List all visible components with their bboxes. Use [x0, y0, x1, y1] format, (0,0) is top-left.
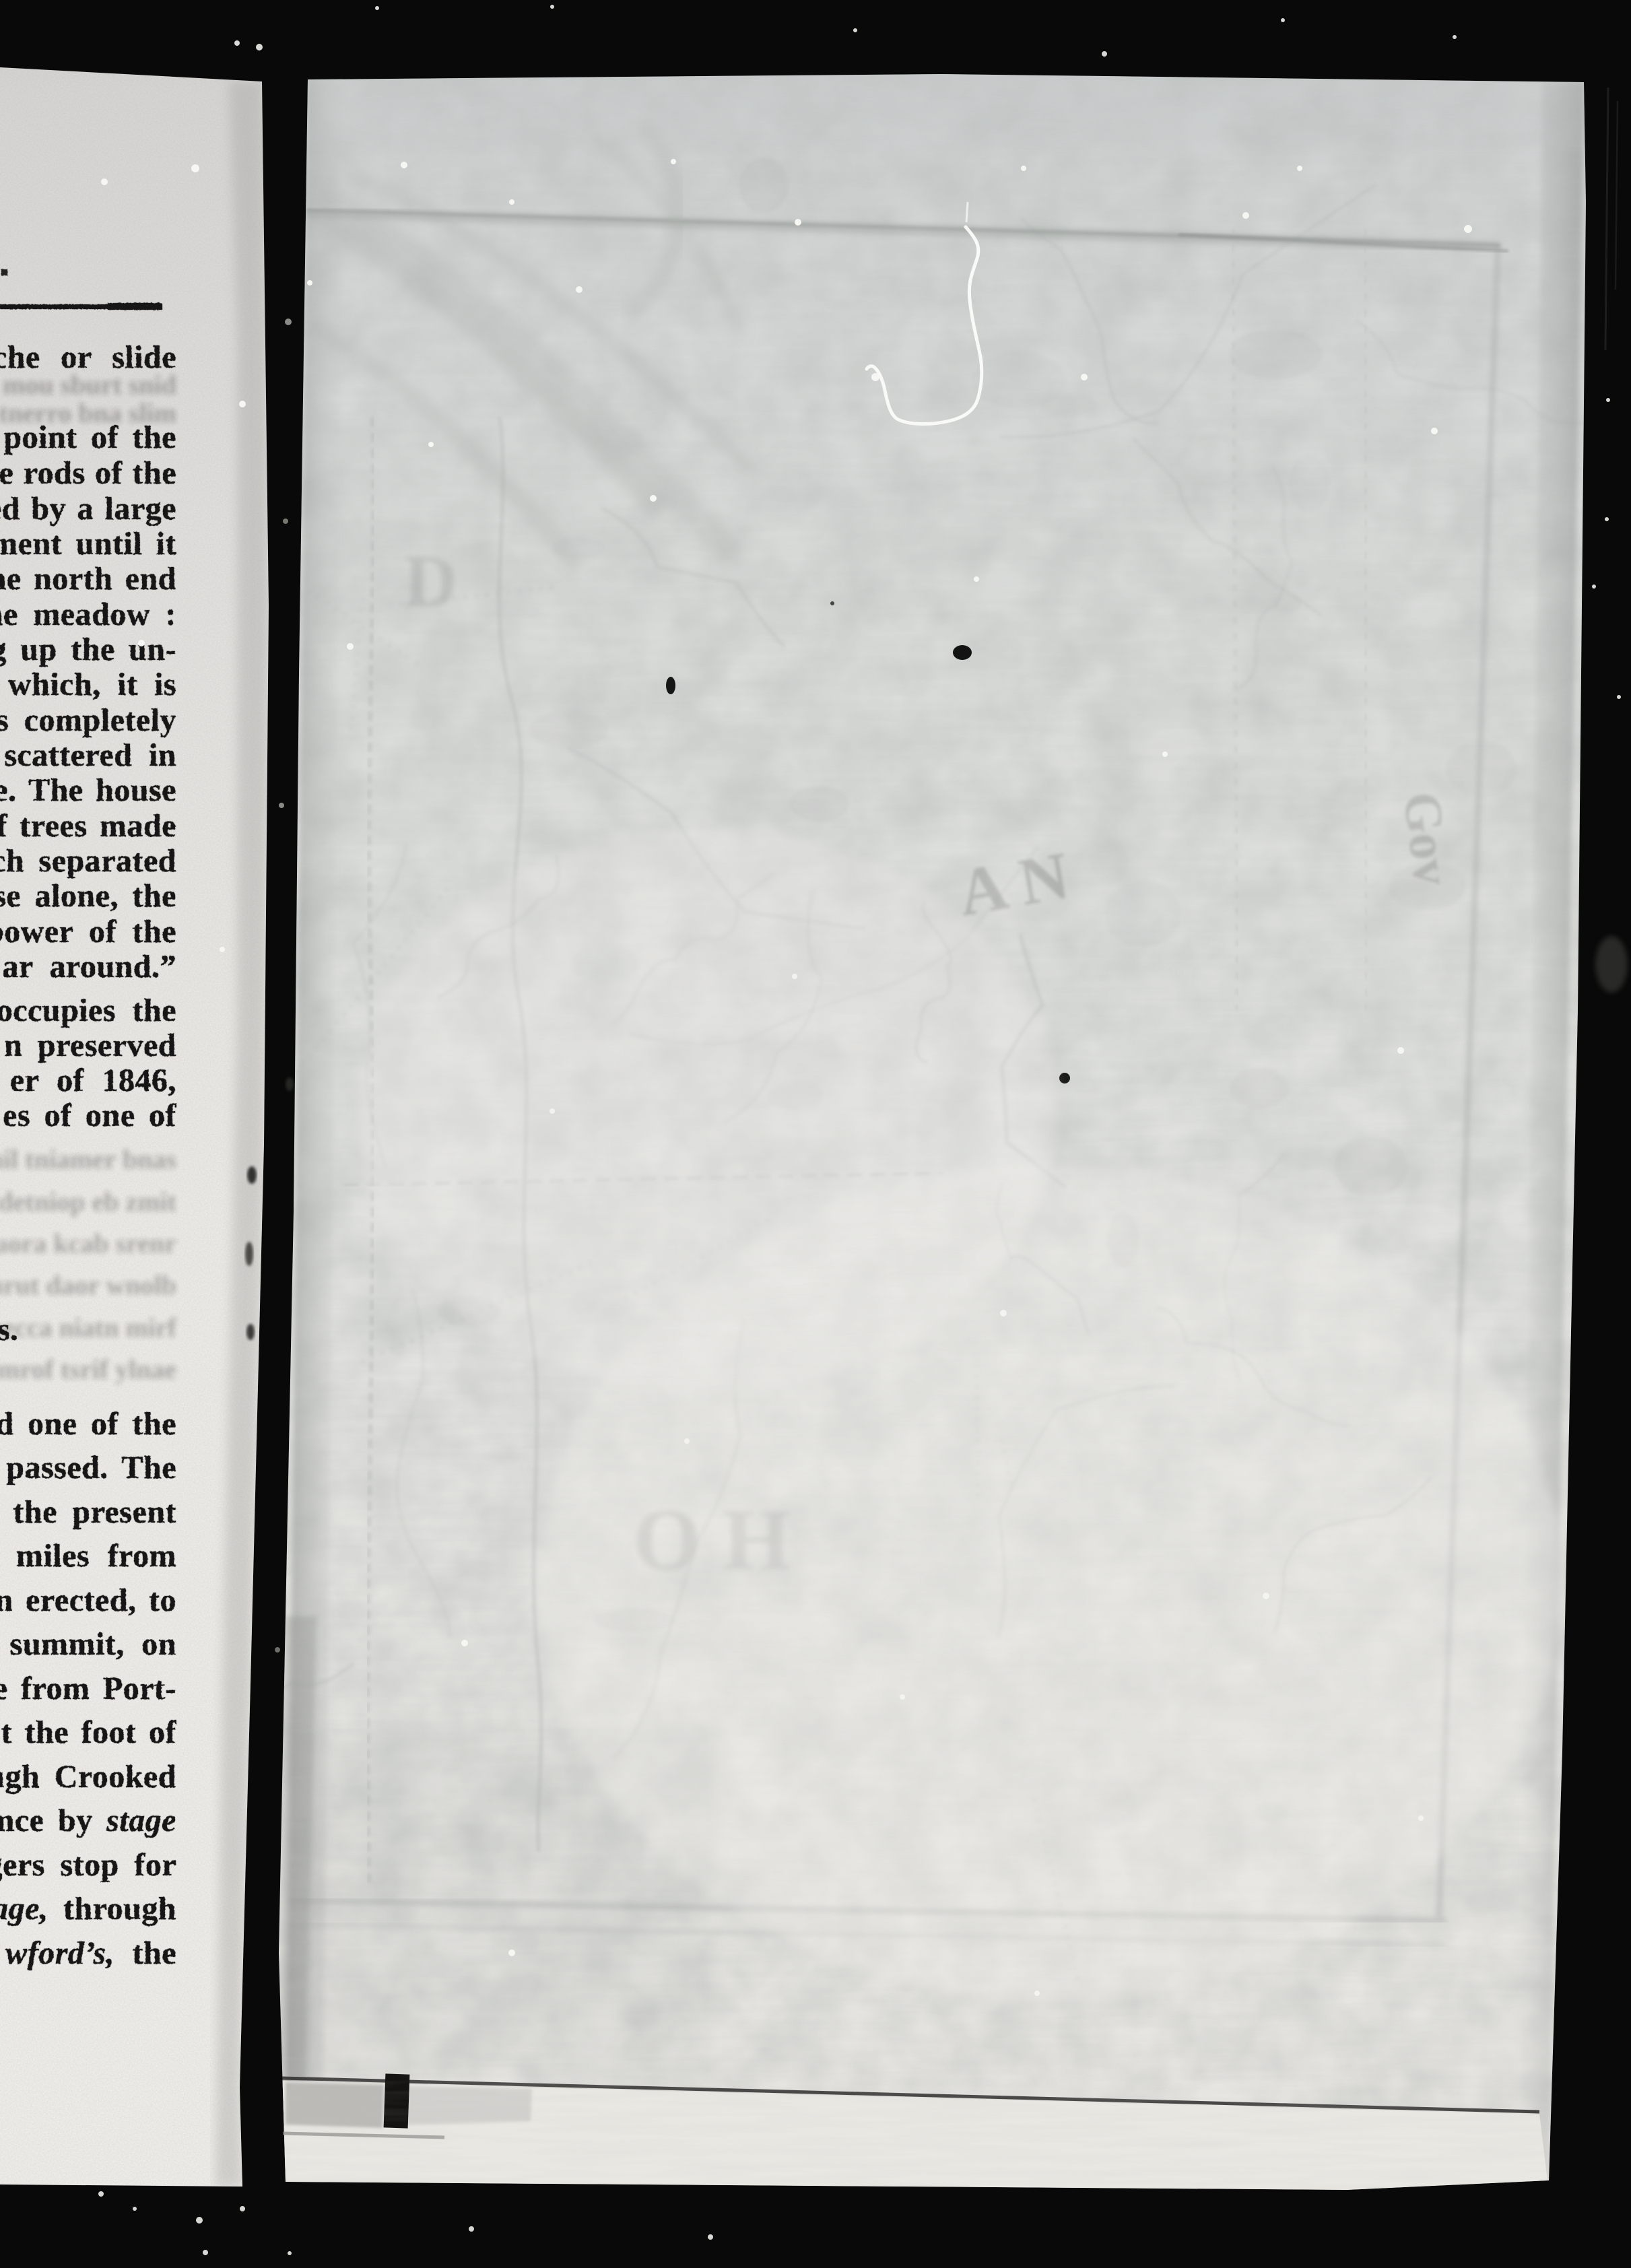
svg-text:mou sburt snid: mou sburt snid — [3, 370, 176, 400]
svg-text:the meadow :: the meadow : — [0, 597, 176, 632]
svg-text:e summit, on: e summit, on — [0, 1626, 176, 1662]
svg-text:se alone, the: se alone, the — [0, 878, 176, 914]
svg-text:snrut daor wnolb: snrut daor wnolb — [0, 1270, 176, 1300]
svg-text:er of 1846,: er of 1846, — [10, 1063, 176, 1098]
svg-text:d one of the: d one of the — [0, 1406, 176, 1442]
svg-text:senil tniamer bnas: senil tniamer bnas — [0, 1144, 176, 1174]
svg-text:e. The house: e. The house — [0, 772, 176, 808]
svg-text:scattered in: scattered in — [4, 737, 176, 773]
svg-text:he north end: he north end — [0, 561, 176, 597]
svg-text:r, which, it is: r, which, it is — [0, 667, 176, 702]
svg-text:f trees made: f trees made — [0, 808, 176, 844]
svg-text:occupies the: occupies the — [0, 993, 176, 1028]
svg-text:ed by a large: ed by a large — [0, 491, 176, 527]
svg-text:ssecca niatn mirf: ssecca niatn mirf — [0, 1312, 177, 1343]
svg-text:ve rods of the: ve rods of the — [0, 455, 176, 491]
svg-text:es of one of: es of one of — [3, 1098, 176, 1133]
svg-text:age, through: age, through — [0, 1891, 176, 1927]
svg-text:mrof tsrif ylnae: mrof tsrif ylnae — [0, 1354, 176, 1385]
svg-text:the present: the present — [13, 1494, 176, 1530]
svg-text:ot detniop eb zmit: ot detniop eb zmit — [0, 1187, 177, 1217]
svg-text:as completely: as completely — [0, 702, 176, 738]
svg-text:ar around.”: ar around.” — [3, 949, 176, 985]
svg-text:n erected, to: n erected, to — [0, 1582, 176, 1618]
svg-text:ng up the un-: ng up the un- — [0, 632, 176, 667]
svg-text:t the foot of: t the foot of — [1, 1714, 177, 1750]
svg-text:power of the: power of the — [0, 914, 176, 949]
svg-text:e from Port-: e from Port- — [0, 1671, 176, 1706]
svg-text:dnuora kcab srenr: dnuora kcab srenr — [0, 1228, 176, 1259]
svg-text:passed. The: passed. The — [6, 1450, 176, 1486]
svg-text:gers stop for: gers stop for — [0, 1847, 176, 1883]
svg-text:oment until it: oment until it — [0, 526, 176, 562]
svg-text:miles from: miles from — [16, 1538, 176, 1574]
svg-text:ugh Crooked: ugh Crooked — [0, 1759, 176, 1795]
svg-text:ich separated: ich separated — [0, 843, 176, 879]
svg-text:wford’s, the: wford’s, the — [5, 1935, 176, 1971]
svg-text:tnerro bna slim: tnerro bna slim — [0, 398, 176, 428]
svg-text:n preserved: n preserved — [4, 1028, 176, 1063]
svg-text:nce by stage: nce by stage — [0, 1803, 176, 1838]
